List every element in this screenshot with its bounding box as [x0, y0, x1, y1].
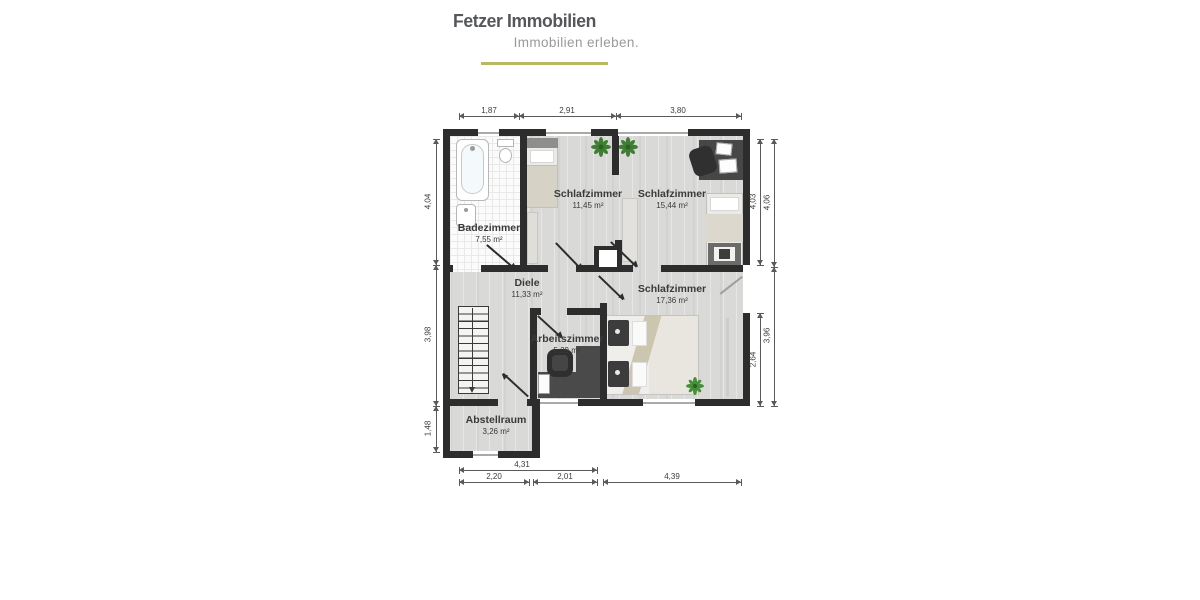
dim-label: 2,91: [547, 106, 587, 115]
plant-icon: [686, 377, 704, 395]
sink-faucet-icon: [464, 208, 468, 212]
office-chair-seat: [552, 355, 568, 371]
room-label-badezimmer: Badezimmer 7,55 m²: [458, 222, 520, 244]
room-label-schlafzimmer-2: Schlafzimmer 15,44 m²: [638, 188, 706, 210]
dim-label: 3,98: [424, 320, 433, 350]
wall-segment: [612, 136, 619, 175]
single-bed-2-pillow: [710, 197, 739, 211]
bathtub-basin: [461, 144, 484, 194]
toilet: [499, 148, 512, 163]
desk-papers: [719, 158, 738, 173]
dim-line: [774, 139, 775, 267]
dim-line: [519, 116, 616, 117]
dim-label: 3,80: [658, 106, 698, 115]
dim-label: 4,31: [502, 460, 542, 469]
dim-line: [459, 116, 519, 117]
desk-papers: [715, 142, 732, 156]
wall-segment: [532, 399, 540, 458]
wall-segment: [450, 265, 453, 272]
dim-label: 4,06: [763, 188, 772, 218]
room-label-schlafzimmer-1: Schlafzimmer 11,45 m²: [554, 188, 622, 210]
wall-segment: [695, 399, 750, 406]
dim-label: 4,04: [424, 187, 433, 217]
single-bed-1-headboard: [526, 138, 558, 148]
brand-title: Fetzer Immobilien: [453, 10, 596, 32]
room-label-schlafzimmer-3: Schlafzimmer 17,36 m²: [638, 283, 706, 305]
dim-line: [459, 482, 529, 483]
double-bed-pillow: [632, 362, 647, 387]
cabinet-study: [538, 374, 550, 394]
wardrobe-2: [622, 198, 638, 262]
single-bed-2-blanket: [706, 214, 743, 242]
knee-wall-line: [726, 318, 729, 396]
window: [643, 402, 695, 404]
window: [473, 454, 498, 456]
wall-segment: [499, 129, 546, 136]
brand-underline: [481, 62, 608, 65]
nightstand-lamp-icon: [615, 370, 620, 375]
bathtub-faucet-icon: [470, 146, 475, 151]
floorplan-page: Fetzer Immobilien Immobilien erleben.: [0, 0, 1200, 600]
plant-icon: [591, 137, 611, 157]
window: [540, 402, 578, 404]
dim-line: [760, 313, 761, 406]
dim-line: [616, 116, 741, 117]
dim-line: [436, 265, 437, 406]
dim-line: [603, 482, 741, 483]
wall-segment: [443, 399, 498, 406]
stair-down-arrow-icon: [469, 387, 475, 393]
stair-direction-line: [472, 308, 473, 388]
wall-segment: [498, 451, 540, 458]
wardrobe-1: [527, 212, 538, 264]
plant-icon: [618, 137, 638, 157]
room-label-diele: Diele 11,33 m²: [512, 277, 543, 299]
wall-segment: [688, 129, 750, 136]
dim-label: 2,01: [545, 472, 585, 481]
room-label-abstellraum: Abstellraum 3,26 m²: [466, 414, 527, 436]
dim-line: [533, 482, 597, 483]
dim-label: 3,96: [763, 321, 772, 351]
window: [478, 132, 499, 134]
wall-segment: [520, 136, 527, 272]
wall-segment: [661, 265, 743, 272]
dim-line: [436, 139, 437, 265]
window: [618, 132, 688, 134]
dim-label: 2,64: [749, 345, 758, 375]
bed-foot-lamp-icon: [719, 249, 730, 259]
window: [546, 132, 591, 134]
toilet-tank: [497, 139, 514, 147]
brand-tagline: Immobilien erleben.: [453, 35, 639, 50]
wall-segment: [443, 451, 473, 458]
staircase: [458, 306, 489, 394]
room-label-arbeitszimmer: Arbeitszimmer 5,29 m²: [531, 333, 604, 355]
dim-label: 2,20: [474, 472, 514, 481]
single-bed-1-pillow: [530, 150, 554, 163]
dim-line: [774, 267, 775, 406]
dim-line: [760, 139, 761, 265]
wall-segment: [578, 399, 643, 406]
dim-label: 1,48: [424, 414, 433, 444]
chimney-core: [599, 250, 617, 267]
dim-label: 1,87: [469, 106, 509, 115]
nightstand-lamp-icon: [615, 329, 620, 334]
double-bed-pillow: [632, 321, 647, 346]
wall-segment: [443, 129, 450, 458]
dim-line: [436, 406, 437, 452]
dim-line: [459, 470, 597, 471]
wall-segment: [622, 265, 633, 272]
dim-label: 4,03: [749, 187, 758, 217]
dim-label: 4,39: [652, 472, 692, 481]
wall-segment: [591, 129, 618, 136]
